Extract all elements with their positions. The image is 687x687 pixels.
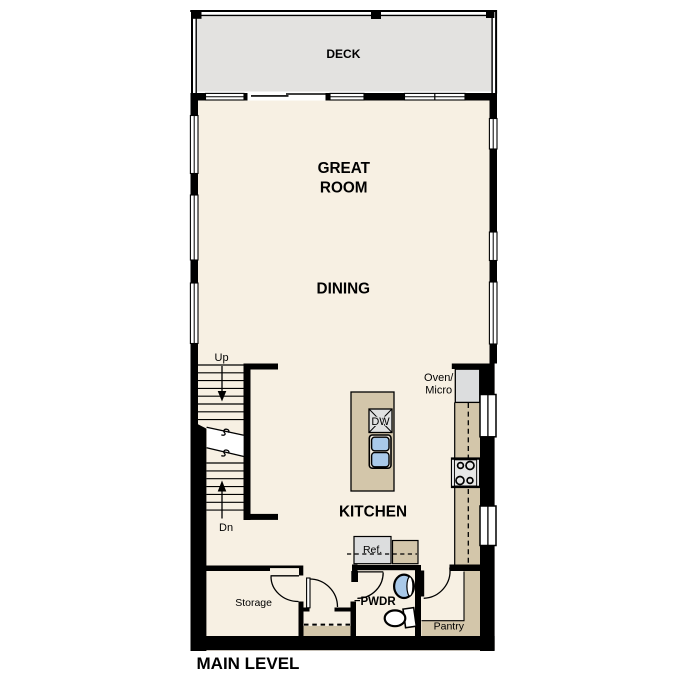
svg-text:GREAT: GREAT [318,160,371,177]
svg-text:DINING: DINING [317,281,371,298]
svg-text:Up: Up [215,352,229,364]
svg-text:DW: DW [371,416,390,428]
svg-text:Pantry: Pantry [434,620,465,632]
svg-text:Storage: Storage [235,597,272,609]
svg-text:PWDR: PWDR [361,596,397,608]
svg-text:KITCHEN: KITCHEN [339,503,407,520]
svg-text:ROOM: ROOM [320,180,368,197]
svg-text:Micro: Micro [425,384,452,396]
svg-text:MAIN LEVEL: MAIN LEVEL [197,654,300,673]
svg-text:Oven/: Oven/ [424,372,454,384]
svg-text:Ref.: Ref. [363,544,382,556]
svg-text:DECK: DECK [326,47,360,61]
svg-text:Dn: Dn [219,522,233,534]
